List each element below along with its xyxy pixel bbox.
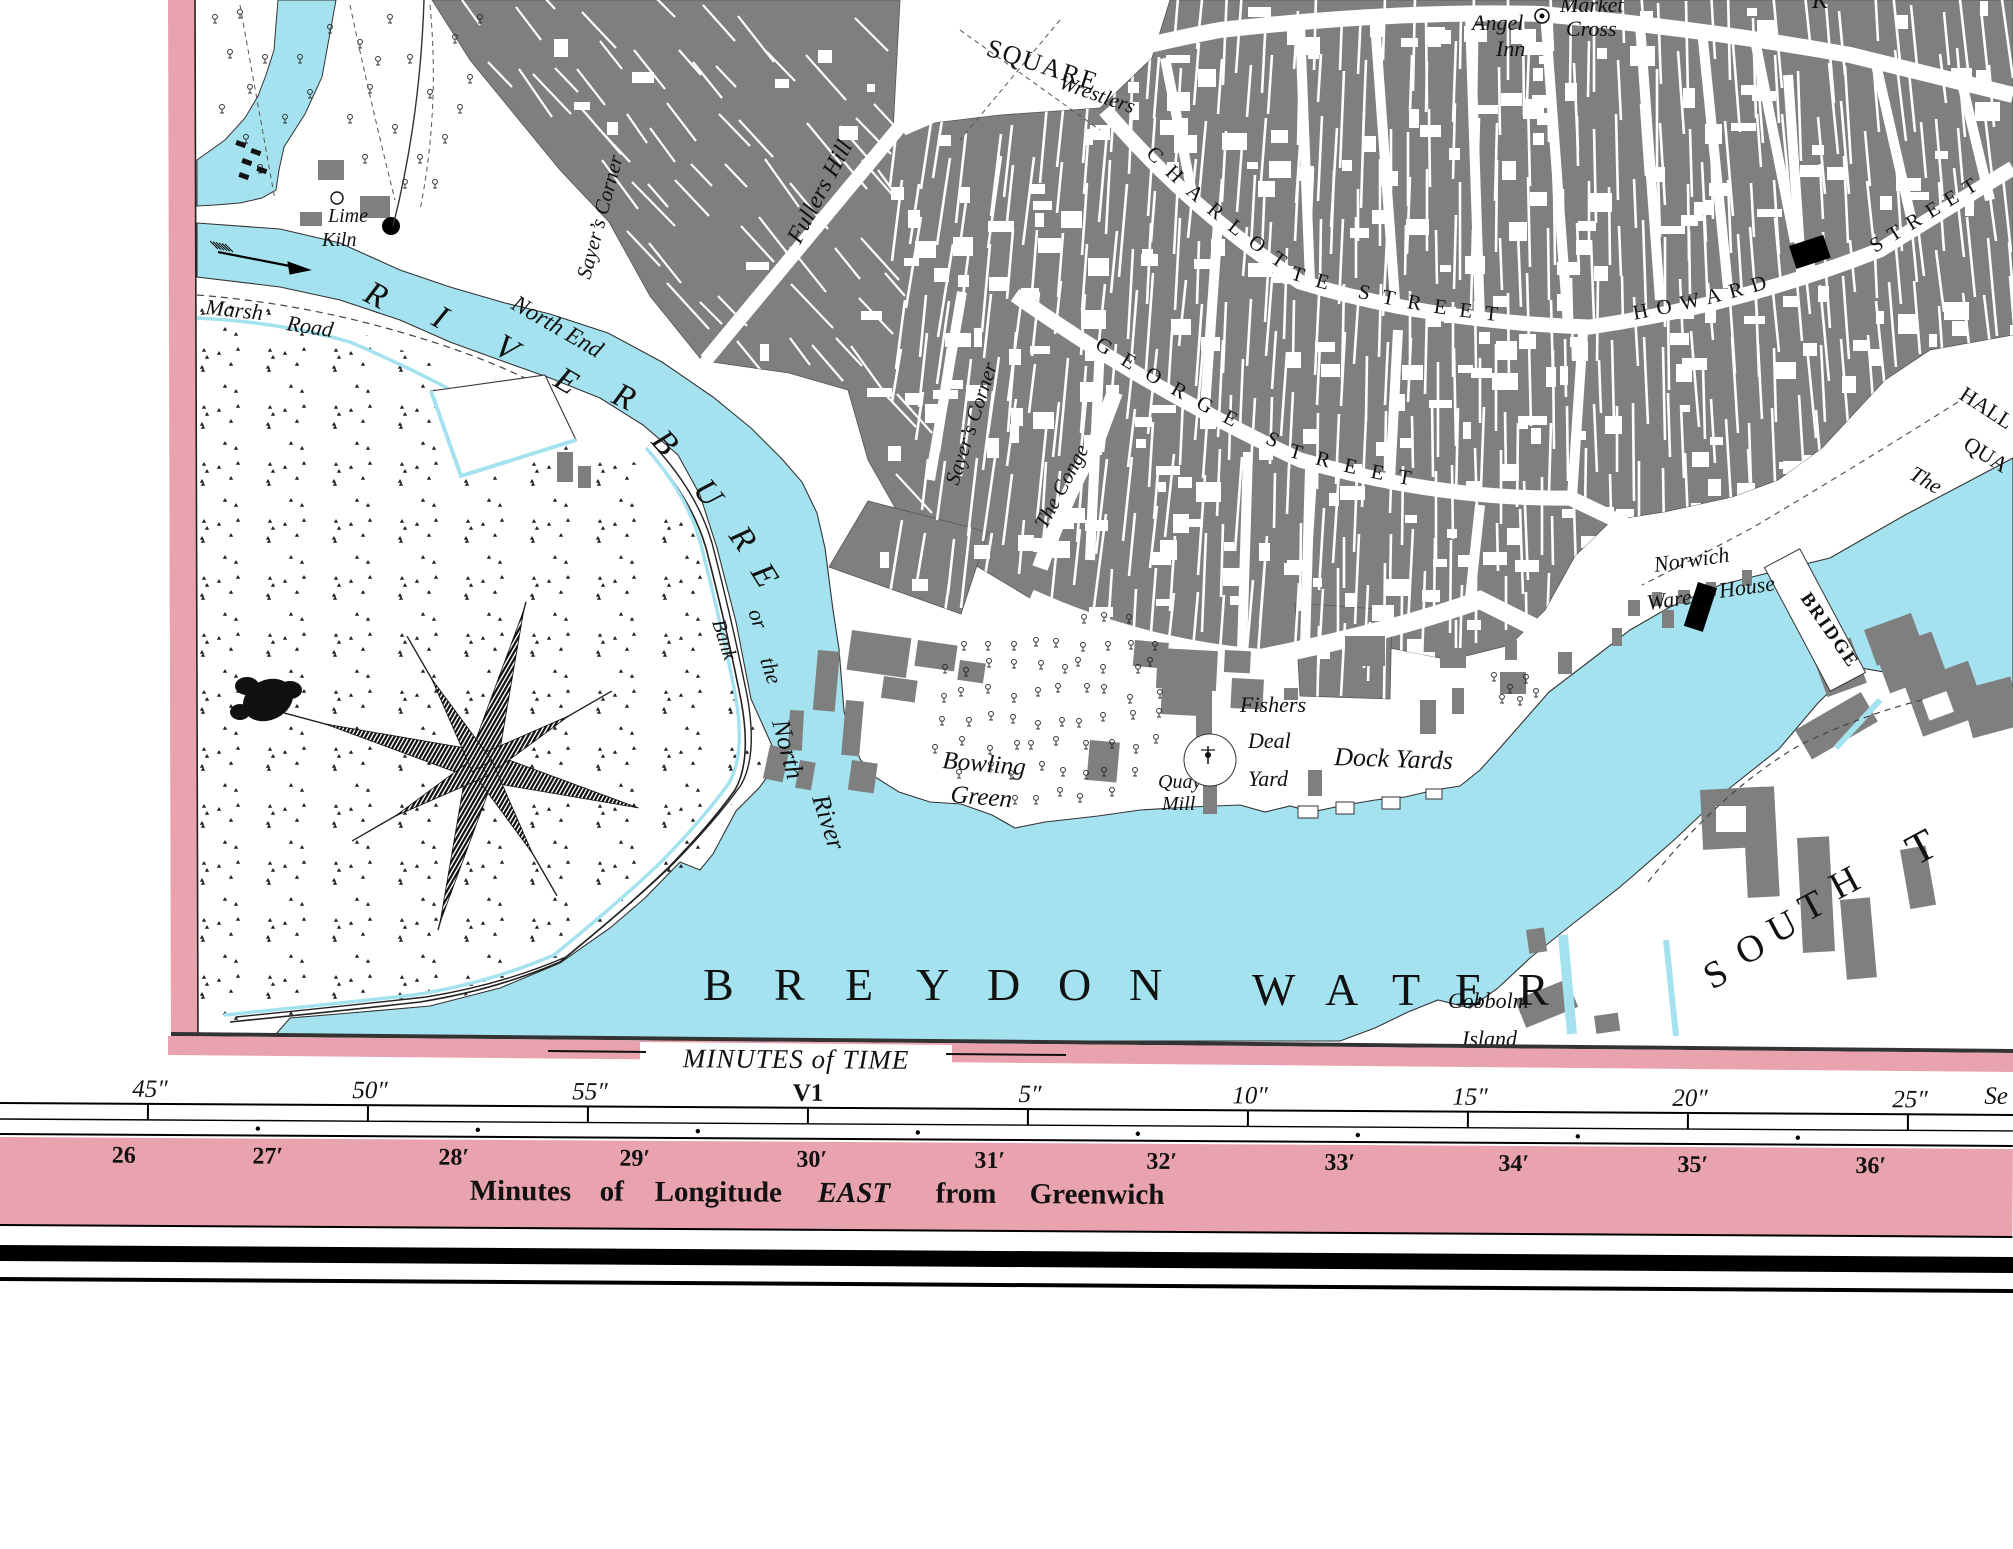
svg-text:R: R <box>774 959 805 1010</box>
svg-text:Yard: Yard <box>1248 766 1289 791</box>
svg-text:Inn: Inn <box>1495 36 1525 61</box>
svg-text:D: D <box>987 959 1020 1010</box>
svg-text:Longitude: Longitude <box>655 1176 783 1209</box>
svg-text:26: 26 <box>112 1143 136 1169</box>
svg-text:33′: 33′ <box>1324 1150 1355 1176</box>
svg-text:EAST: EAST <box>817 1177 892 1209</box>
svg-text:Dock Yards: Dock Yards <box>1333 742 1454 775</box>
svg-text:55″: 55″ <box>572 1078 608 1105</box>
svg-text:32′: 32′ <box>1146 1149 1177 1175</box>
svg-text:27′: 27′ <box>252 1143 283 1169</box>
svg-text:Se: Se <box>1984 1083 2008 1110</box>
svg-text:34′: 34′ <box>1498 1151 1529 1177</box>
svg-text:Market: Market <box>1559 0 1624 17</box>
svg-text:20″: 20″ <box>1672 1085 1708 1112</box>
svg-text:Lime: Lime <box>327 205 368 227</box>
svg-text:T: T <box>1392 964 1420 1015</box>
svg-text:25″: 25″ <box>1892 1086 1928 1113</box>
svg-text:5″: 5″ <box>1019 1081 1043 1108</box>
svg-text:V1: V1 <box>793 1080 824 1107</box>
svg-text:Fishers: Fishers <box>1239 692 1306 717</box>
svg-text:from: from <box>936 1178 997 1210</box>
svg-text:28′: 28′ <box>438 1145 469 1171</box>
svg-text:35′: 35′ <box>1677 1152 1708 1178</box>
svg-text:Cobbolm: Cobbolm <box>1448 988 1529 1013</box>
svg-text:Cross: Cross <box>1566 16 1617 41</box>
svg-text:Greenwich: Greenwich <box>1030 1178 1165 1211</box>
svg-text:15″: 15″ <box>1452 1084 1488 1111</box>
svg-text:B: B <box>703 959 734 1010</box>
svg-text:of: of <box>600 1176 625 1208</box>
svg-text:A: A <box>1325 964 1358 1015</box>
svg-text:Green: Green <box>949 781 1013 813</box>
svg-text:O: O <box>1058 959 1091 1010</box>
svg-text:Y: Y <box>916 959 949 1010</box>
svg-text:30′: 30′ <box>796 1147 827 1173</box>
svg-text:45″: 45″ <box>132 1076 168 1103</box>
svg-text:E: E <box>845 959 873 1010</box>
svg-text:Angel: Angel <box>1470 10 1523 35</box>
svg-text:29′: 29′ <box>619 1146 650 1172</box>
svg-text:N: N <box>1129 959 1162 1010</box>
svg-text:Deal: Deal <box>1247 728 1291 753</box>
svg-text:Minutes: Minutes <box>470 1175 572 1208</box>
svg-text:K: K <box>1811 0 1830 14</box>
svg-text:Kiln: Kiln <box>321 229 356 251</box>
svg-text:W: W <box>1252 964 1296 1015</box>
svg-text:Mill: Mill <box>1161 793 1196 815</box>
svg-text:50″: 50″ <box>352 1077 388 1104</box>
svg-text:MINUTES of TIME: MINUTES of TIME <box>682 1043 910 1075</box>
svg-text:36′: 36′ <box>1855 1153 1886 1179</box>
svg-text:10″: 10″ <box>1232 1082 1268 1109</box>
svg-text:31′: 31′ <box>974 1148 1005 1174</box>
